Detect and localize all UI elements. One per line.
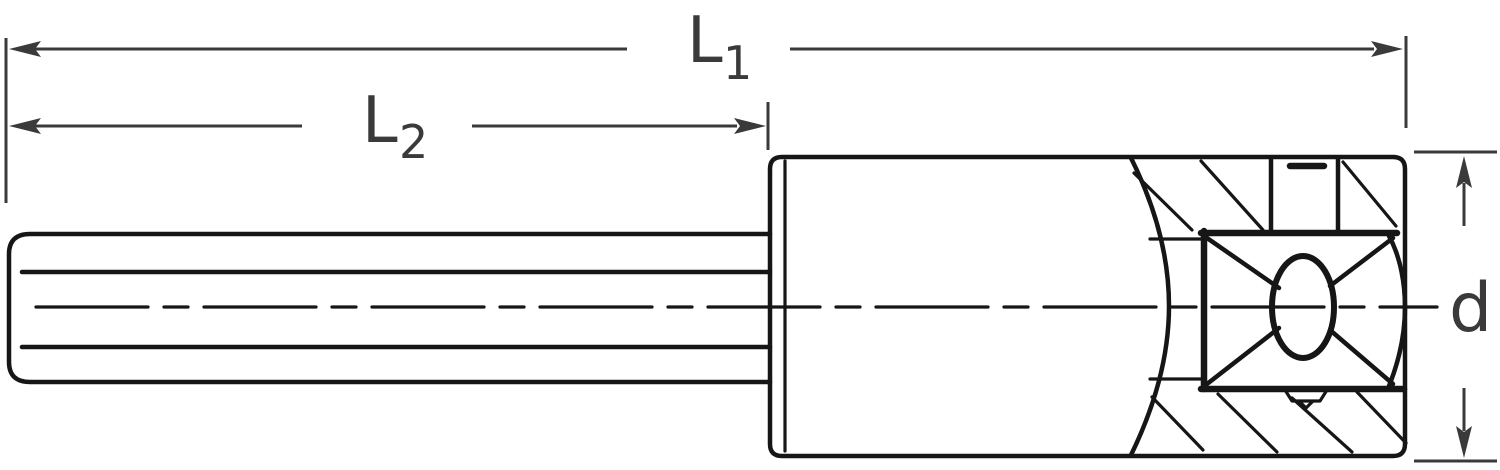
recess-diagonal-top-left — [1207, 238, 1279, 288]
recess-diagonal-bottom-right — [1330, 330, 1393, 384]
recess-diagonal-top-right — [1330, 238, 1393, 286]
recess-diagonal-bottom-left — [1207, 328, 1279, 384]
hatch-line — [1292, 398, 1352, 452]
arrowhead-right — [1371, 41, 1403, 57]
hatch-line — [1134, 173, 1192, 230]
recess-back-arc — [1389, 236, 1405, 386]
hatch-line — [1201, 161, 1263, 230]
hatch-line — [1218, 394, 1277, 452]
dimension-l1-subscript: 1 — [723, 36, 752, 90]
drawing-svg: L 1 L 2 d — [0, 0, 1500, 470]
dimension-l1: L 1 — [6, 4, 1406, 203]
dimension-l2-subscript: 2 — [399, 115, 428, 169]
technical-drawing-canvas: L 1 L 2 d — [0, 0, 1500, 470]
dimension-d-label: d — [1449, 269, 1492, 348]
dimension-l2: L 2 — [9, 84, 768, 169]
hatch-line — [1152, 397, 1203, 450]
hatch-line — [1357, 392, 1406, 443]
hatch-line — [1343, 162, 1396, 226]
square-drive-recess — [1201, 231, 1405, 389]
dimension-l1-label: L — [687, 4, 723, 78]
arrowhead-right — [734, 118, 766, 134]
dimension-l2-label: L — [362, 84, 398, 158]
